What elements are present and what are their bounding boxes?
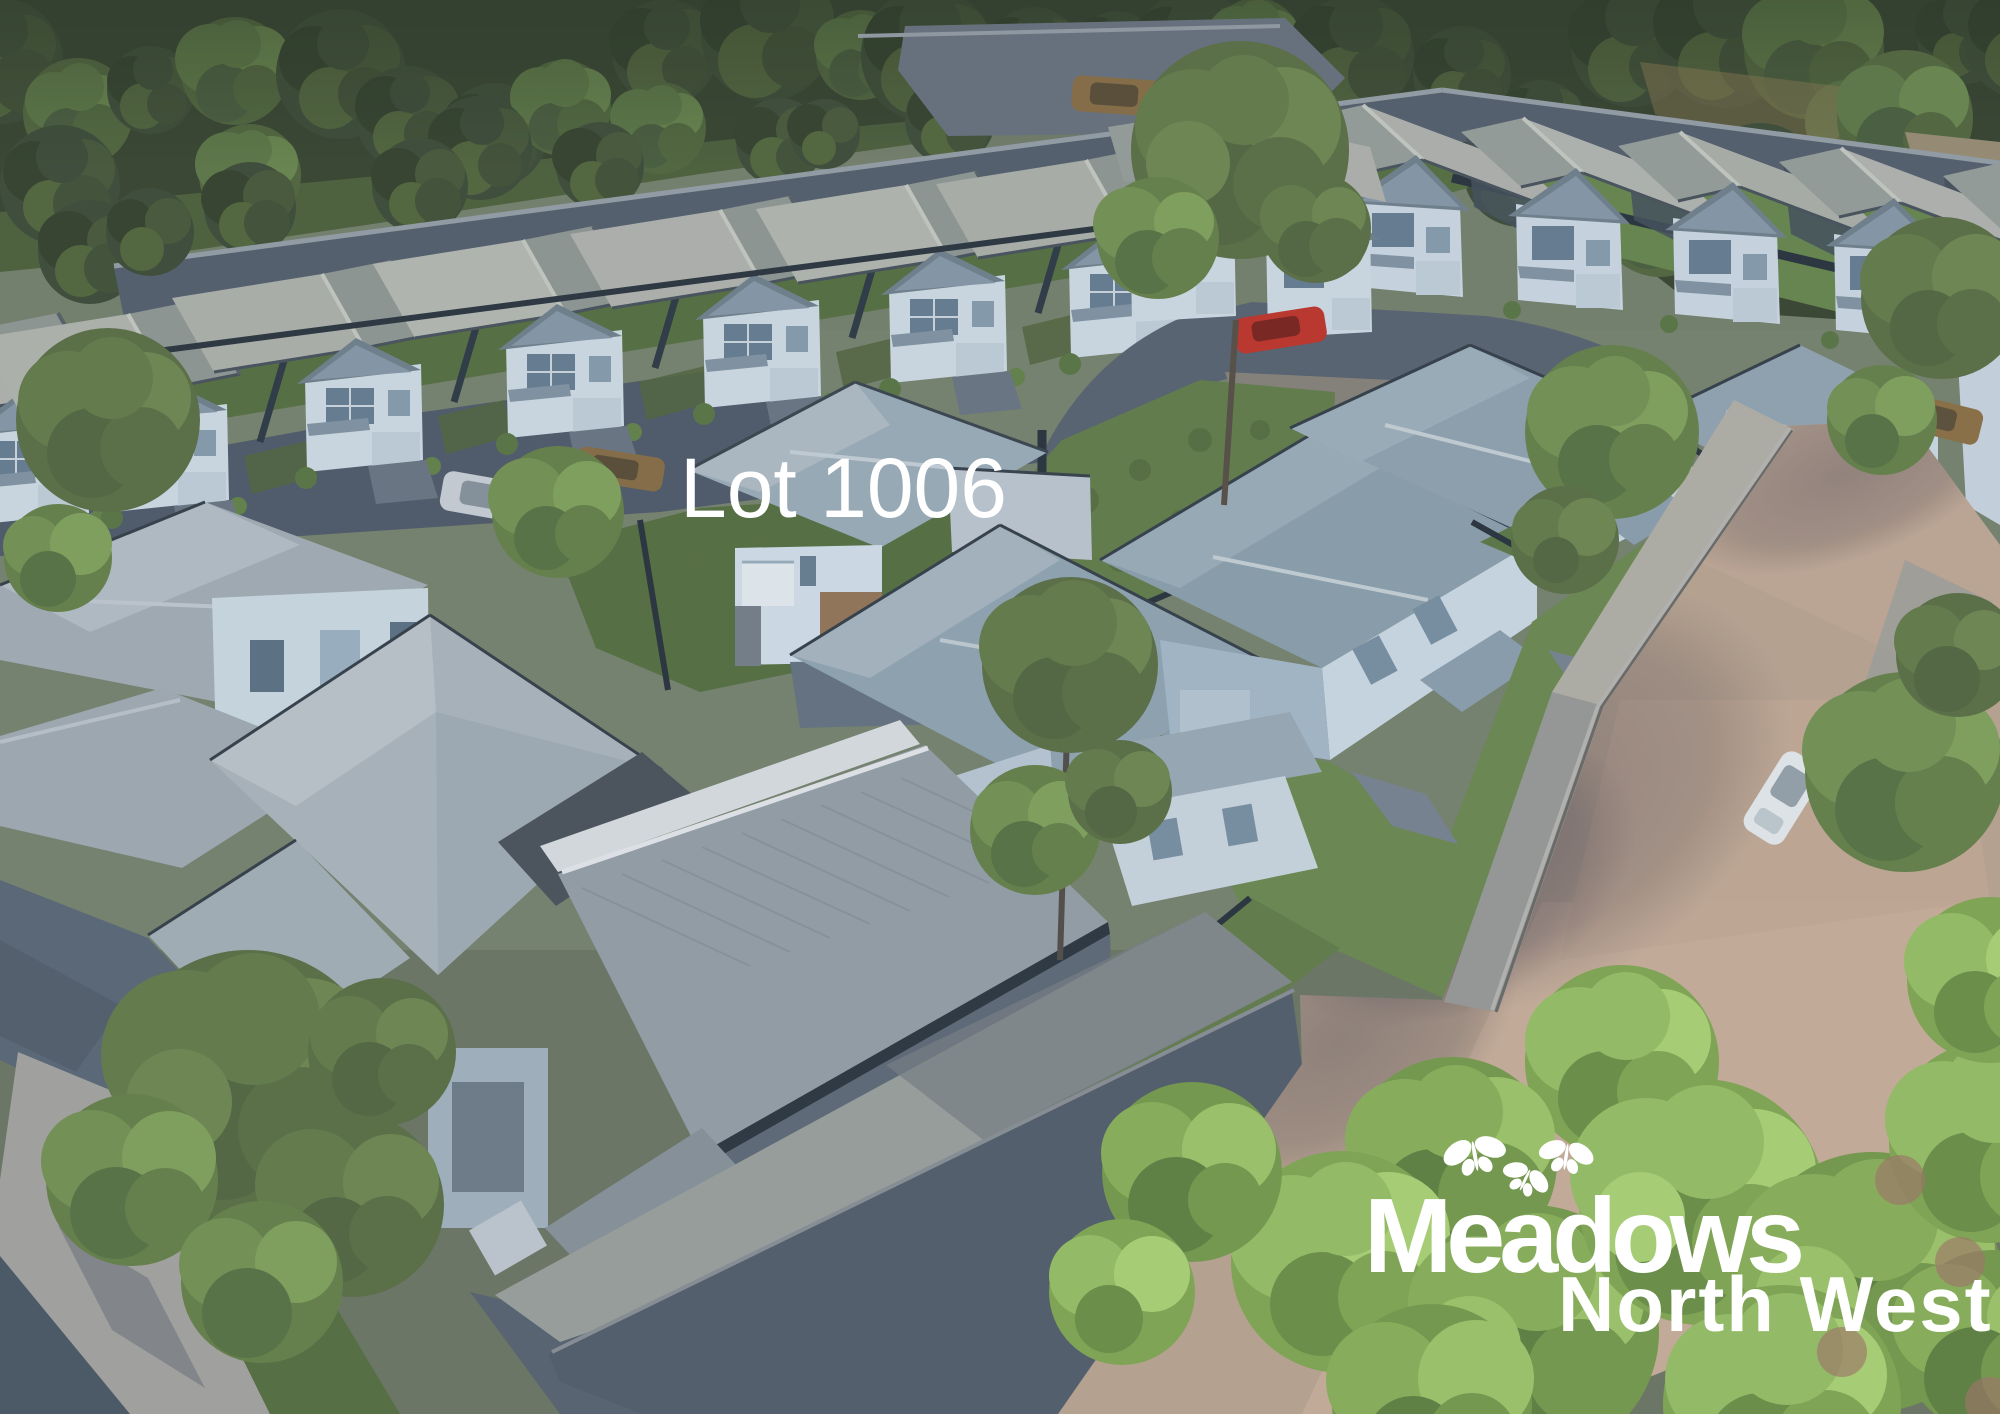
svg-text:North West: North West — [1558, 1260, 1993, 1348]
svg-text:Lot 1006: Lot 1006 — [680, 441, 1007, 535]
